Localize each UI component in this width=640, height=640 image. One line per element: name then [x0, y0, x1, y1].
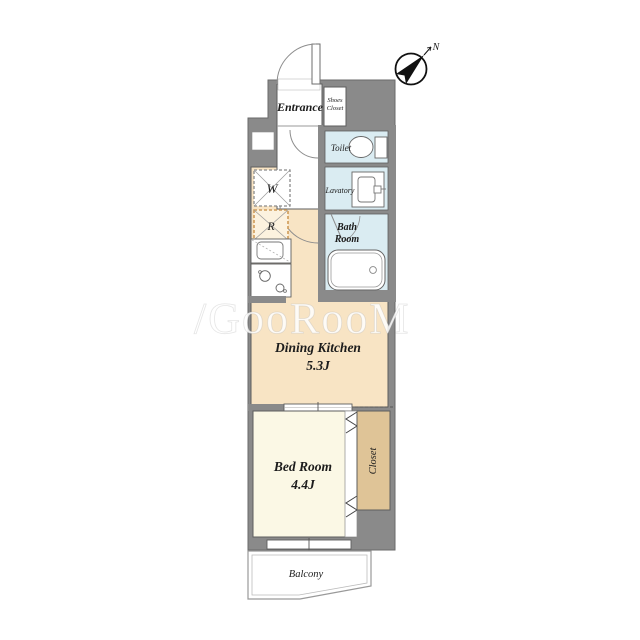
bedroom-size: 4.4J [290, 477, 316, 492]
dining-kitchen-label: Dining Kitchen [274, 340, 361, 355]
bathtub-drain [370, 267, 377, 274]
lavatory-label: Lavatory [325, 186, 355, 195]
toilet-tank [375, 137, 387, 158]
bathroom-label-line2: Room [334, 234, 360, 245]
north-compass: N [396, 42, 441, 85]
entry-door-swing-arc [277, 44, 316, 84]
floor-plan-page: /GooRooM N Entrance Shoes Closet Toilet … [0, 0, 640, 640]
wall-notch [252, 132, 274, 150]
bathroom-label-line1: Bath [336, 222, 357, 233]
entrance-label: Entrance [276, 100, 324, 114]
closet-label: Closet [368, 447, 379, 475]
shoes-closet-label-line1: Shoes [327, 97, 343, 104]
floor-plan-drawing: /GooRooM N Entrance Shoes Closet Toilet … [0, 0, 640, 640]
stove-burner-small [276, 284, 284, 292]
entry-door-leaf [312, 44, 320, 84]
bedroom-label: Bed Room [273, 459, 332, 474]
toilet-label: Toilet [331, 143, 352, 153]
dining-kitchen-size: 5.3J [306, 358, 331, 373]
toilet-bowl [349, 137, 373, 158]
bedroom-floor [253, 411, 355, 537]
toilet-fixture [349, 137, 387, 159]
north-label: N [432, 42, 441, 53]
washer-symbol-label: W [267, 181, 279, 196]
shoes-closet-label-line2: Closet [327, 105, 344, 112]
bathtub-fixture [328, 250, 385, 290]
dk-bedroom-wall [248, 404, 284, 411]
refrigerator-symbol-label: R [266, 219, 275, 233]
balcony-window [267, 538, 351, 551]
lavatory-sink-fixture [352, 172, 386, 207]
balcony-label: Balcony [289, 569, 324, 580]
watermark-text: /GooRooM [194, 294, 410, 343]
